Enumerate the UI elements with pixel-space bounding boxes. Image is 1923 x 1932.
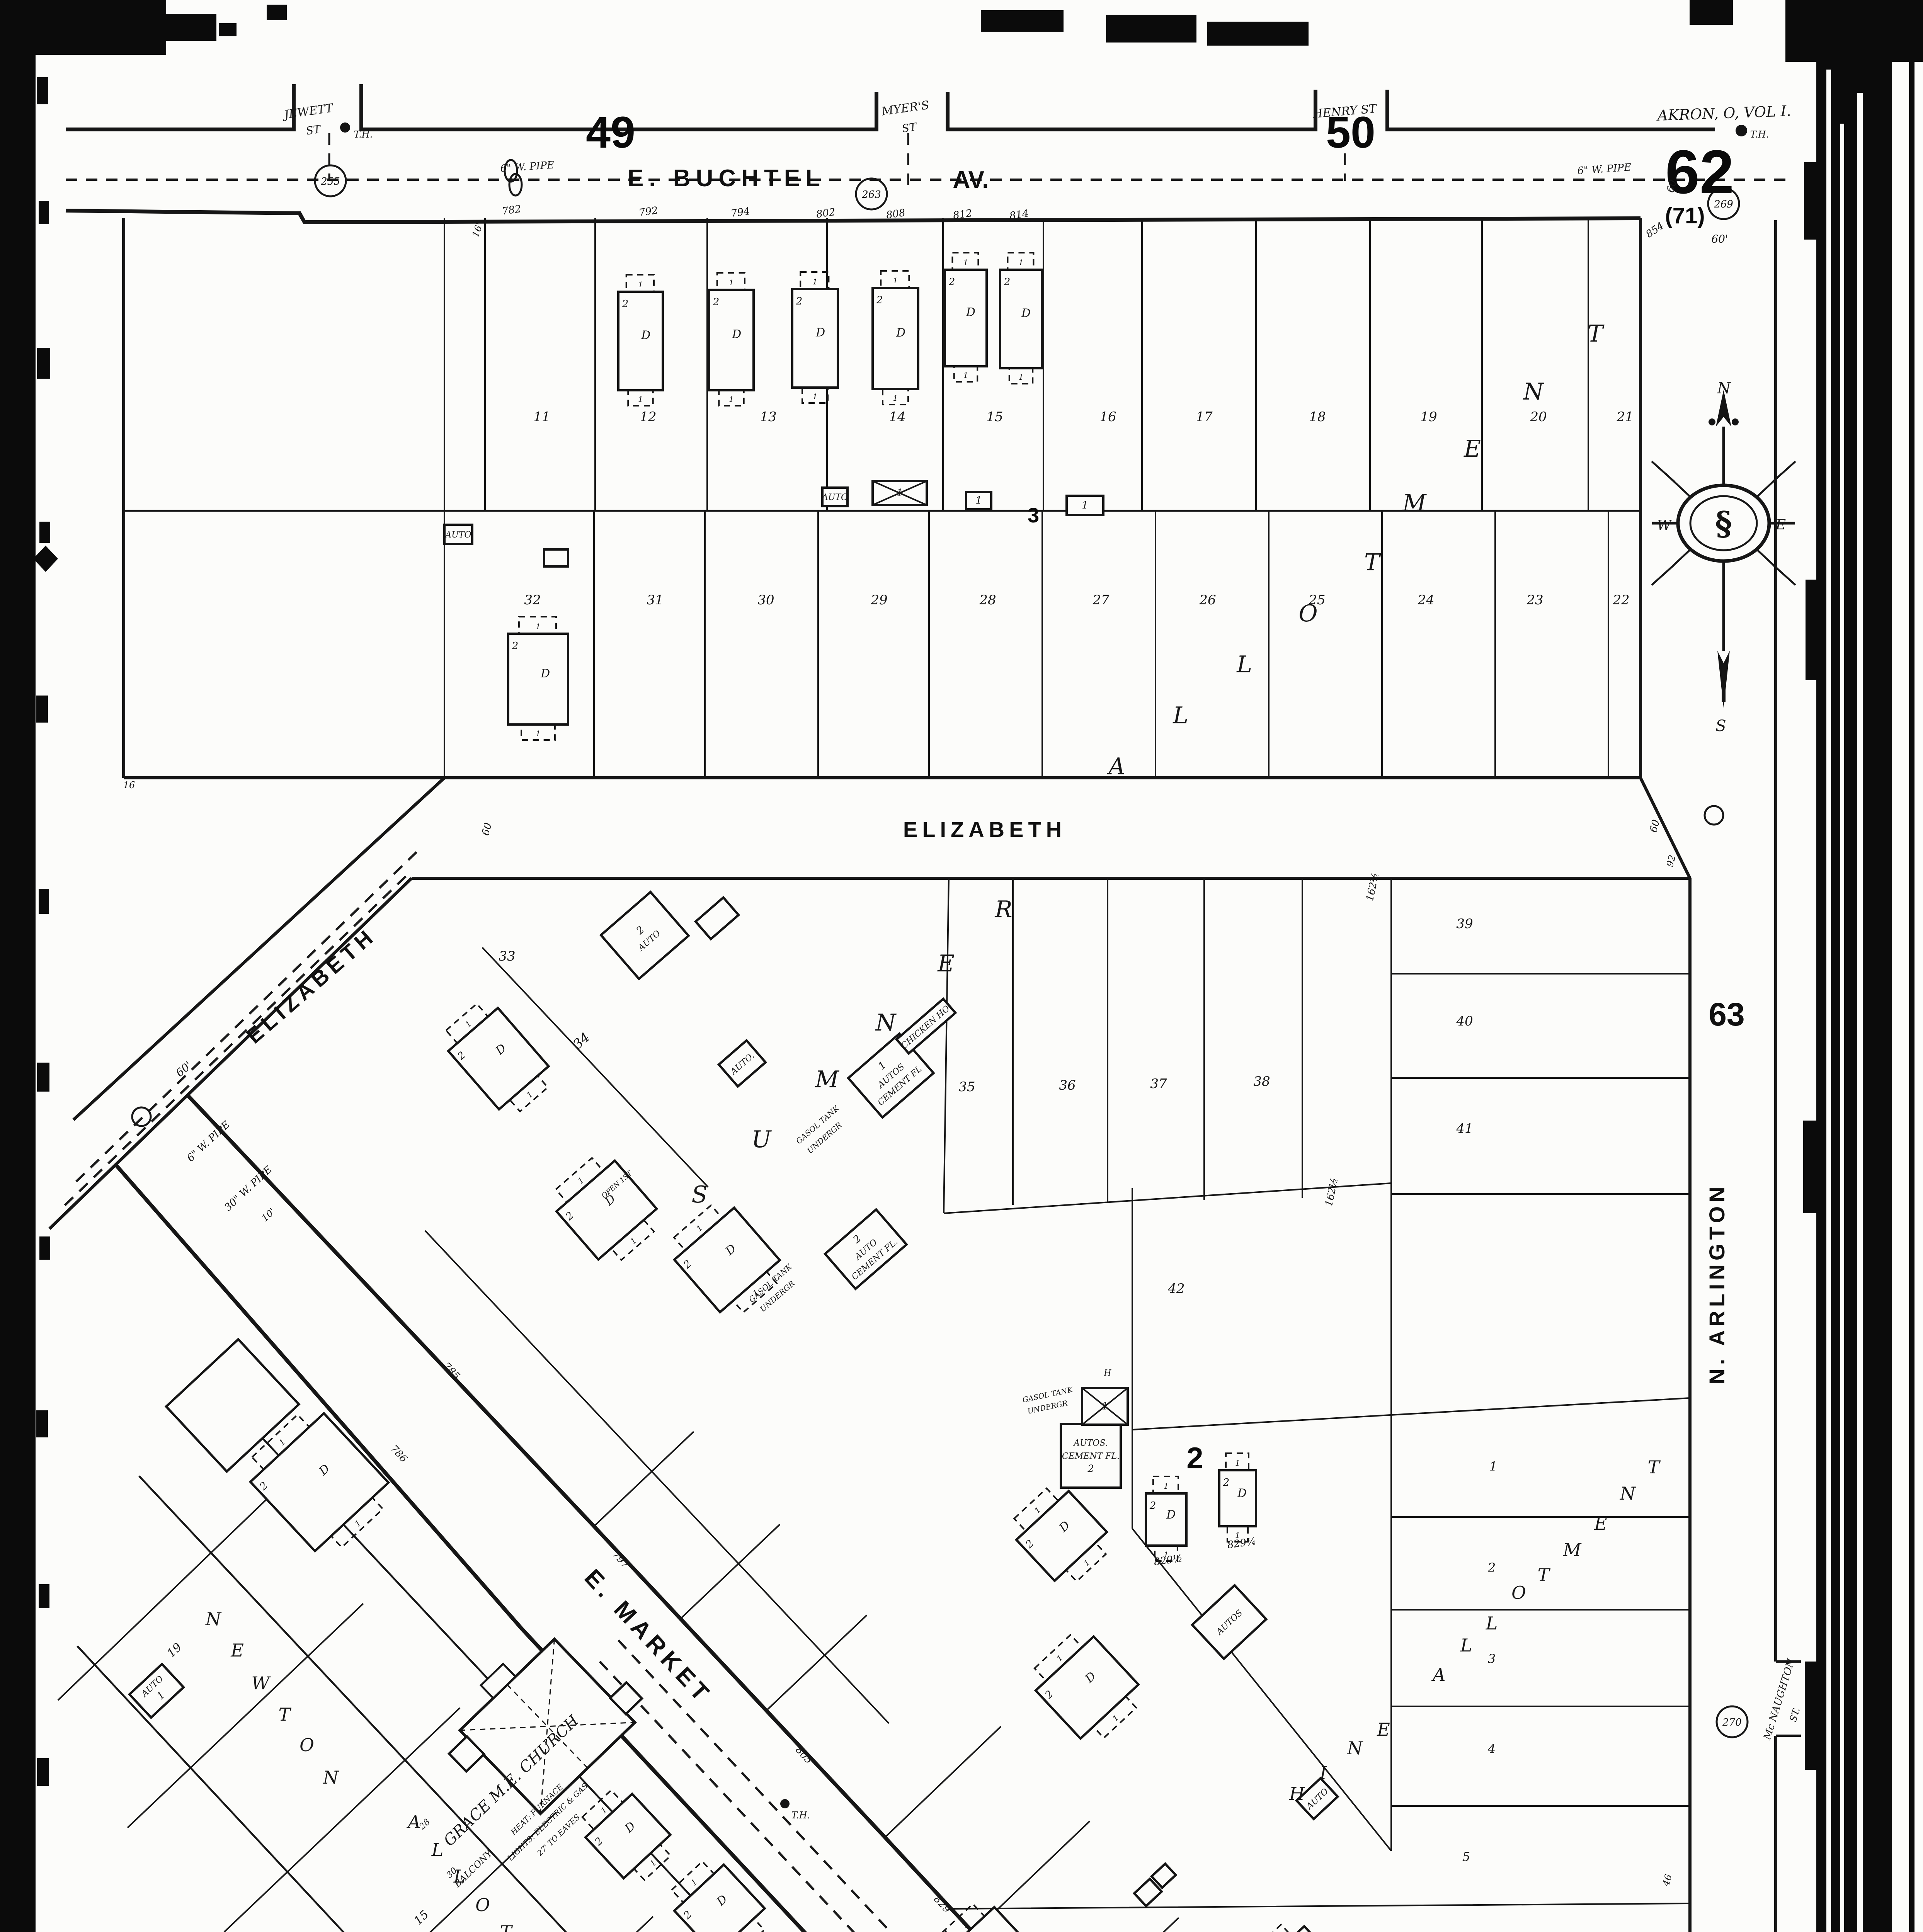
allotment-letter: U	[752, 1126, 772, 1153]
dim-label: 60	[480, 821, 495, 837]
story-label: 1	[638, 280, 643, 289]
allotment-letter: L	[1460, 1635, 1472, 1656]
dwelling: 112D	[709, 273, 754, 406]
allotment-letter: S	[691, 1181, 707, 1208]
story-label: 1	[576, 1175, 585, 1185]
allotment-letter: T	[500, 1922, 513, 1932]
lot-number: 39	[1456, 916, 1473, 932]
allotment-letter: O	[300, 1735, 314, 1755]
dim-label: 162½	[1364, 872, 1382, 902]
story-label: 1	[1164, 1481, 1169, 1491]
lot-number: 15	[986, 409, 1003, 425]
street-e-buchtel: E. BUCHTEL	[628, 165, 825, 192]
story-label: 1	[1019, 258, 1024, 267]
lot-number: 14	[889, 409, 905, 425]
dim-label: 162½	[1323, 1177, 1341, 1207]
allotment-letter: H	[1289, 1783, 1305, 1804]
story-label: 1	[536, 729, 541, 738]
story-label: 1	[963, 258, 968, 267]
address: 802	[815, 206, 836, 221]
lot-number: 3	[1488, 1651, 1496, 1666]
auto-garage: AUTO	[444, 525, 472, 544]
building-label: CHICKEN HO.	[899, 1002, 953, 1051]
dim-label: 16'	[470, 221, 485, 238]
lot-number: 31	[647, 592, 663, 608]
address: 829½	[1153, 1553, 1183, 1568]
lot-number: 34	[570, 1029, 593, 1052]
allotment-letter: W	[251, 1673, 271, 1694]
allotment-letter: N	[323, 1767, 339, 1788]
lot-number: 30	[757, 592, 774, 608]
dwelling-label: D	[540, 667, 550, 680]
hydrant-th-label: T.H.	[1750, 129, 1769, 140]
dwelling-label: D	[641, 328, 650, 342]
building-label: 1	[1082, 500, 1088, 511]
street-n-arlington: N. ARLINGTON	[1705, 1183, 1729, 1384]
lot-number: 12	[640, 409, 656, 425]
lot-number: 20	[1530, 409, 1547, 425]
pipe-label: 6" W. PIPE	[1577, 162, 1632, 177]
compass-rose-icon: §	[1652, 390, 1795, 708]
sheet-number: 62	[1665, 137, 1734, 206]
story-label: 1	[1082, 1558, 1092, 1568]
street-jewett-st: ST	[305, 122, 322, 137]
volume-note: AKRON, O, VOL I.	[1656, 102, 1791, 124]
story-label: 1	[638, 395, 643, 404]
auto-garage: 2AUTOCEMENT FL.	[825, 1209, 907, 1289]
hydrant-dot-icon	[340, 122, 350, 133]
allotment-letter: E	[1594, 1513, 1607, 1534]
dwelling: 112D	[437, 995, 559, 1121]
allotment-letter: O	[1511, 1582, 1526, 1603]
auto-garage-skylight: 1	[1082, 1388, 1128, 1425]
dim-label: 10'	[259, 1206, 277, 1224]
street-buchtel-av: AV.	[953, 167, 989, 193]
building-label: CEMENT FL.	[1062, 1452, 1120, 1461]
dwelling: 112D	[1219, 1453, 1256, 1542]
story-label: 2	[512, 640, 519, 652]
allotment-letter: A	[406, 1811, 420, 1832]
hydrant-circle	[1705, 806, 1723, 825]
map-labels: 495062(71)AKRON, O, VOL I.T.H.T.H.T.H.JE…	[123, 99, 1802, 1932]
large-house	[166, 1339, 299, 1471]
story-label: 1	[277, 1437, 287, 1447]
allotment-letter: E	[1377, 1719, 1390, 1740]
address: 782	[501, 203, 522, 218]
story-label: 1	[1055, 1653, 1065, 1663]
lot-number: 16	[1099, 409, 1116, 425]
dim-label: 60'	[1711, 233, 1728, 245]
building-label: AUTOS.	[1073, 1439, 1108, 1448]
story-label: 1	[963, 371, 968, 380]
building-label: 1	[975, 495, 982, 507]
allotment-letter: T	[1588, 320, 1605, 347]
allotment-letter: L	[431, 1839, 444, 1860]
compass-monogram: §	[1715, 504, 1732, 543]
hydrant-number: 270	[1722, 1717, 1742, 1728]
lot-number: 26	[1199, 592, 1216, 608]
story-label: 2	[948, 276, 955, 288]
hydrant-circle	[132, 1107, 151, 1126]
map-canvas: §	[0, 0, 1923, 1932]
sheet-number-alt: (71)	[1665, 203, 1705, 228]
dwelling: 112D	[873, 271, 918, 405]
story-label: 2	[1149, 1500, 1156, 1512]
lot-number: 19	[1420, 409, 1437, 425]
dwelling-label: D	[896, 326, 905, 340]
story-label: 2	[796, 296, 803, 307]
sheet-ref-49: 49	[586, 108, 635, 157]
dwelling: 112D	[618, 275, 663, 406]
allotment-letter: L	[1173, 702, 1188, 729]
hydrant-dot-icon	[1736, 125, 1747, 136]
dwelling-label: D	[1021, 306, 1031, 320]
auto-garage: 2AUTO	[601, 892, 689, 979]
lot-number: 41	[1456, 1121, 1473, 1136]
compass-letter-s: S	[1715, 717, 1726, 735]
dwelling: 112D	[1146, 1476, 1186, 1561]
compass-letter-e: E	[1775, 517, 1786, 533]
allotment-letter: T	[1364, 549, 1381, 576]
dwelling: 112D	[1005, 1479, 1117, 1592]
block-number: 3	[1028, 504, 1039, 527]
dim-label: 60'	[174, 1059, 194, 1079]
allotment-letter: T	[279, 1704, 292, 1725]
allotment-letter: O	[475, 1895, 490, 1915]
allotment-letter: M	[1562, 1539, 1582, 1560]
dwelling-label: D	[1166, 1508, 1176, 1522]
address: 794	[730, 206, 750, 220]
pipe-label: 30" W. PIPE	[222, 1164, 274, 1214]
allotment-letter: A	[1431, 1664, 1445, 1685]
hydrant-th-label: T.H.	[354, 129, 373, 140]
story-label: 1	[893, 393, 898, 403]
allotment-letter: L	[1236, 651, 1252, 678]
compass-letter-w: W	[1657, 518, 1672, 534]
street-myers: MYER'S	[880, 99, 930, 119]
lot-number: 13	[760, 409, 776, 425]
dwelling-label: D	[1237, 1487, 1247, 1500]
compass-letter-n: N	[1717, 379, 1732, 397]
allotment-letter: O	[1298, 600, 1317, 627]
dim-label: 46	[1661, 1873, 1674, 1888]
story-label: 1	[689, 1877, 699, 1887]
dwelling-label: D	[732, 328, 741, 341]
lot-number: 23	[1526, 592, 1543, 608]
allotment-letter: I	[1319, 1762, 1327, 1783]
story-label: 1	[1019, 372, 1024, 382]
lot-number: 40	[1456, 1014, 1473, 1029]
story-label: 1	[893, 276, 898, 285]
lot-number: 29	[870, 592, 887, 608]
lot-number: 5	[1462, 1849, 1470, 1864]
story-label: 1	[353, 1518, 363, 1528]
address: 805	[793, 1744, 815, 1766]
story-label: 1	[525, 1089, 534, 1099]
outbuilding	[544, 549, 568, 566]
outbuilding: 1	[1067, 496, 1103, 515]
lot-number: 1	[1489, 1459, 1497, 1474]
block-number: 2	[1186, 1441, 1203, 1475]
allotment-letter: E	[937, 950, 955, 977]
skylight-building: 1	[873, 481, 927, 505]
dwelling: 112D	[1000, 253, 1042, 384]
story-label: 2	[622, 298, 629, 310]
story-label: 1	[1111, 1713, 1121, 1723]
dwelling: 112D	[1024, 1624, 1149, 1750]
lot-number: 33	[499, 949, 515, 964]
allotment-letter: N	[875, 1009, 897, 1036]
allotment-letter: T	[1648, 1457, 1661, 1478]
lot-number: 36	[1059, 1078, 1076, 1093]
lot-number: 42	[1167, 1281, 1184, 1296]
dwelling: 112D	[933, 1895, 1046, 1932]
lot-number: 38	[1253, 1074, 1270, 1089]
lot-number: 32	[524, 592, 541, 608]
lot-number: 18	[1309, 409, 1326, 425]
address: 785	[441, 1360, 462, 1382]
building-label: 1	[1102, 1401, 1108, 1412]
street-jewett: JEWETT	[281, 101, 335, 122]
building-label: AUTO	[444, 530, 471, 540]
lot-number: 11	[533, 409, 550, 425]
hydrant-circle: 270	[1717, 1706, 1748, 1737]
street-lines	[49, 84, 1801, 1932]
allotment-letter: A	[1106, 753, 1125, 780]
building-label: 2	[1087, 1463, 1094, 1475]
dwelling: 112D	[508, 617, 568, 740]
allotment-letter: R	[994, 896, 1012, 923]
address: 797	[610, 1549, 631, 1571]
story-label: 1	[813, 277, 818, 286]
story-label: 1	[628, 1236, 638, 1246]
street-elizabeth: ELIZABETH	[903, 817, 1066, 842]
address: 786	[388, 1443, 410, 1465]
note-h: H	[1103, 1368, 1111, 1378]
lot-number: 28	[979, 592, 996, 608]
lot-number: 15	[412, 1908, 432, 1928]
story-label: 1	[463, 1019, 473, 1029]
story-label: 2	[1223, 1477, 1230, 1488]
story-label: 1	[813, 392, 818, 401]
auto-garage: AUTO.	[719, 1041, 766, 1087]
building-label: AUTO	[821, 493, 848, 502]
pipe-label: 6" W. PIPE	[185, 1119, 232, 1164]
auto-garage: 1AUTOSCEMENT FL	[848, 1034, 934, 1117]
story-label: 2	[713, 296, 720, 308]
street-myers-st: ST	[901, 120, 918, 135]
address: 829¾	[1227, 1536, 1257, 1551]
hydrant-circle: 263	[856, 179, 887, 209]
allotment-letter: M	[815, 1066, 839, 1093]
dwelling: 112D	[663, 1852, 775, 1932]
outbuilding	[696, 898, 739, 939]
street-mcnaughton-st: ST.	[1788, 1706, 1802, 1723]
story-label: 1	[536, 622, 541, 631]
outbuilding: 1	[966, 492, 991, 509]
allotment-letter: E	[1464, 435, 1481, 463]
allotment-letter: N	[1347, 1738, 1363, 1759]
sheet-ref-63: 63	[1709, 996, 1744, 1032]
hydrant-number: 255	[320, 176, 340, 187]
allotment-letter: E	[230, 1640, 244, 1661]
allotment-letter: M	[1402, 490, 1427, 517]
dim-label: 16	[123, 780, 135, 791]
hydrant-number: 263	[861, 189, 881, 201]
story-label: 1	[1033, 1505, 1043, 1515]
dwelling: 112D	[545, 1148, 667, 1271]
address: 854	[1644, 220, 1666, 240]
story-label: 2	[876, 294, 883, 306]
story-label: 1	[729, 278, 734, 287]
lot-number: 21	[1616, 409, 1633, 425]
allotment-letter: T	[1538, 1565, 1551, 1585]
story-label: 1	[1235, 1458, 1240, 1468]
street-mcnaughton: Mc NAUGHTON	[1761, 1657, 1797, 1742]
lot-number: 17	[1196, 409, 1213, 425]
auto-garage: AUTOS	[1192, 1585, 1266, 1659]
dwelling: 112D	[945, 253, 987, 382]
sanborn-map-sheet: §	[0, 0, 1923, 1932]
hydrant-dot-icon	[780, 1799, 790, 1808]
dwelling: 112D	[1235, 1914, 1361, 1932]
auto-garage: AUTOS.CEMENT FL.2	[1061, 1424, 1121, 1488]
street-elizabeth-diagonal: ELIZABETH	[242, 923, 381, 1048]
lot-number: 19	[165, 1640, 185, 1660]
allotment-letter: N	[1523, 378, 1545, 405]
hydrant-circle: 255	[315, 165, 346, 196]
allotment-letter: N	[1620, 1483, 1636, 1504]
lot-number: 35	[958, 1079, 975, 1095]
lot-number: 4	[1487, 1742, 1496, 1756]
lot-number: 22	[1612, 592, 1629, 608]
address: 829	[931, 1893, 953, 1915]
lot-number: 27	[1092, 592, 1110, 608]
lot-number: 24	[1417, 592, 1434, 608]
church-note: 27' TO EAVES	[535, 1812, 582, 1858]
dim-label: 92	[1664, 854, 1678, 868]
story-label: 1	[694, 1223, 704, 1233]
lot-number: 2	[1487, 1560, 1496, 1575]
address: 792	[638, 205, 659, 219]
hydrant-th-label: T.H.	[791, 1810, 810, 1821]
story-label: 2	[1004, 276, 1011, 288]
building-label: 1	[897, 487, 903, 499]
lot-number: 37	[1150, 1076, 1167, 1092]
dwelling: 112D	[792, 272, 838, 403]
building-footprints: 112D112D112D112D112D112D112D112D112D112D…	[129, 253, 1407, 1932]
dwelling-label: D	[815, 326, 825, 339]
auto-garage: AUTO	[821, 488, 848, 506]
allotment-letter: L	[1486, 1613, 1498, 1634]
story-label: 1	[729, 395, 734, 404]
allotment-letter: N	[205, 1609, 222, 1629]
dwelling-label: D	[966, 306, 975, 319]
dwelling: 112D	[574, 1781, 681, 1889]
